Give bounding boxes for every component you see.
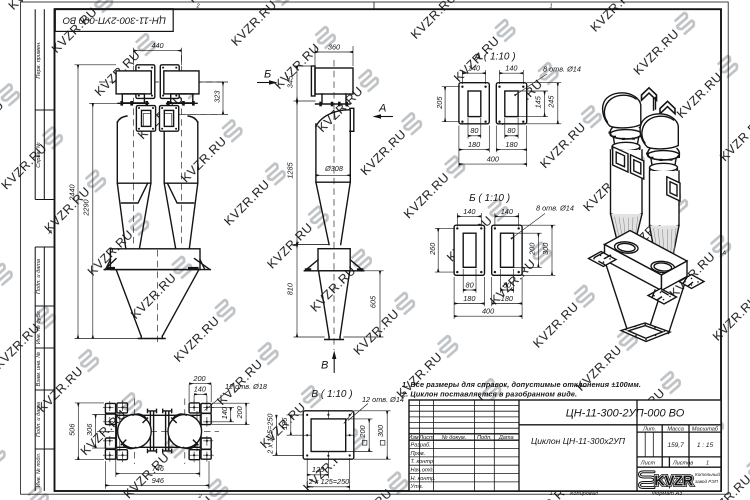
svg-text:Формат А3: Формат А3 [652,491,683,497]
svg-text:В: В [321,360,328,372]
svg-text:Подп. и дата: Подп. и дата [36,259,42,294]
svg-text:80: 80 [470,126,478,135]
svg-text:200: 200 [192,374,205,383]
svg-text:200: 200 [358,425,367,438]
svg-text:1: 1 [549,3,552,9]
svg-text:Перв. примен.: Перв. примен. [36,41,42,78]
svg-text:1. Все размеры для справок, до: 1. Все размеры для справок, допустимые о… [402,380,641,389]
svg-text:300: 300 [376,425,385,437]
svg-text:810: 810 [285,283,294,295]
svg-text:180: 180 [501,294,513,303]
svg-text:1 : 15: 1 : 15 [697,442,714,449]
svg-text:440: 440 [151,41,163,50]
svg-text:Копировал: Копировал [570,491,599,497]
svg-text:159,7: 159,7 [667,442,684,449]
svg-text:80: 80 [466,280,474,289]
svg-text:746: 746 [152,464,165,473]
svg-text:Масштаб: Масштаб [692,426,719,432]
svg-text:Инв. № дубл.: Инв. № дубл. [36,310,42,344]
svg-text:№ докум.: № докум. [442,435,467,441]
svg-text:145: 145 [534,95,543,108]
svg-text:605: 605 [368,295,377,308]
svg-text:400: 400 [487,155,499,164]
svg-text:400: 400 [482,307,494,316]
svg-text:Справ. №: Справ. № [36,142,42,167]
svg-text:Взам. инв. №: Взам. инв. № [36,352,42,387]
svg-text:Листов: Листов [672,460,693,466]
svg-text:125: 125 [280,417,289,430]
svg-text:Пров.: Пров. [411,451,426,457]
svg-text:125: 125 [312,465,325,474]
svg-text:Дата: Дата [498,435,514,441]
svg-text:Б ( 1:10 ): Б ( 1:10 ) [469,193,510,204]
svg-text:2 х 125=250: 2 х 125=250 [266,414,275,455]
svg-text:2. Циклон поставляется в разоб: 2. Циклон поставляется в разобранном вид… [401,389,577,398]
svg-text:Подп.: Подп. [477,435,492,441]
svg-text:8 отв. Ø14: 8 отв. Ø14 [536,204,574,213]
svg-text:Циклон ЦН-11-300х2УП: Циклон ЦН-11-300х2УП [531,436,626,446]
svg-text:323: 323 [213,91,222,103]
svg-text:140: 140 [501,207,513,216]
svg-text:2290: 2290 [82,199,91,216]
svg-text:80: 80 [507,126,515,135]
svg-text:Разраб.: Разраб. [411,443,431,449]
svg-text:80: 80 [503,280,511,289]
svg-text:245: 245 [547,95,556,109]
svg-text:А: А [721,251,726,257]
svg-text:Котельный: Котельный [695,471,720,477]
svg-text:В ( 1:10 ): В ( 1:10 ) [311,389,352,400]
svg-text:Т. контр.: Т. контр. [411,459,435,465]
svg-text:Утв.: Утв. [410,484,424,490]
svg-text:2 х 125=250: 2 х 125=250 [308,477,349,486]
svg-text:Ø308: Ø308 [324,164,344,173]
svg-text:12 отв. Ø14: 12 отв. Ø14 [362,395,404,404]
svg-text:12 отв. Ø18: 12 отв. Ø18 [225,382,268,391]
svg-text:140: 140 [463,207,475,216]
svg-text:Б: Б [264,69,271,81]
svg-text:1: 1 [549,491,552,497]
svg-text:260: 260 [428,243,437,256]
svg-text:Лист: Лист [640,460,656,466]
svg-text:Лит.: Лит. [642,426,656,432]
svg-text:200: 200 [235,406,244,419]
svg-text:200: 200 [527,243,536,256]
svg-text:180: 180 [505,140,517,149]
svg-text:Лист: Лист [418,435,434,441]
svg-text:1285: 1285 [285,161,294,178]
svg-text:140: 140 [505,64,517,73]
svg-text:завод РЭП: завод РЭП [694,479,719,484]
svg-text:Масса: Масса [667,426,684,432]
svg-text:306: 306 [85,423,94,436]
svg-text:Н. контр.: Н. контр. [411,476,436,482]
svg-text:345: 345 [285,75,294,88]
svg-text:140: 140 [468,64,480,73]
svg-text:ЦН-11-300-2УП-000 ВО: ЦН-11-300-2УП-000 ВО [62,15,166,26]
svg-text:А: А [48,230,53,236]
svg-text:2440: 2440 [68,184,77,201]
svg-text:Инв. № подл.: Инв. № подл. [36,453,42,488]
svg-text:1: 1 [706,460,709,466]
svg-text:205: 205 [435,96,444,110]
svg-text:KVZR: KVZR [654,473,693,490]
svg-text:300: 300 [541,243,550,255]
svg-text:140: 140 [194,385,206,394]
svg-text:Нач.отд.: Нач.отд. [411,468,435,474]
svg-text:180: 180 [463,294,475,303]
svg-text:506: 506 [68,423,77,436]
svg-text:ЦН-11-300-2УП-000 ВО: ЦН-11-300-2УП-000 ВО [566,408,685,420]
svg-text:А: А [378,103,386,115]
svg-text:180: 180 [468,140,480,149]
svg-text:Подп. и дата: Подп. и дата [36,402,42,437]
svg-text:140: 140 [220,407,229,419]
svg-text:946: 946 [152,476,165,485]
svg-text:360: 360 [328,43,340,52]
svg-text:А ( 1:10 ): А ( 1:10 ) [473,52,515,63]
svg-text:8 отв. Ø14: 8 отв. Ø14 [543,65,581,74]
